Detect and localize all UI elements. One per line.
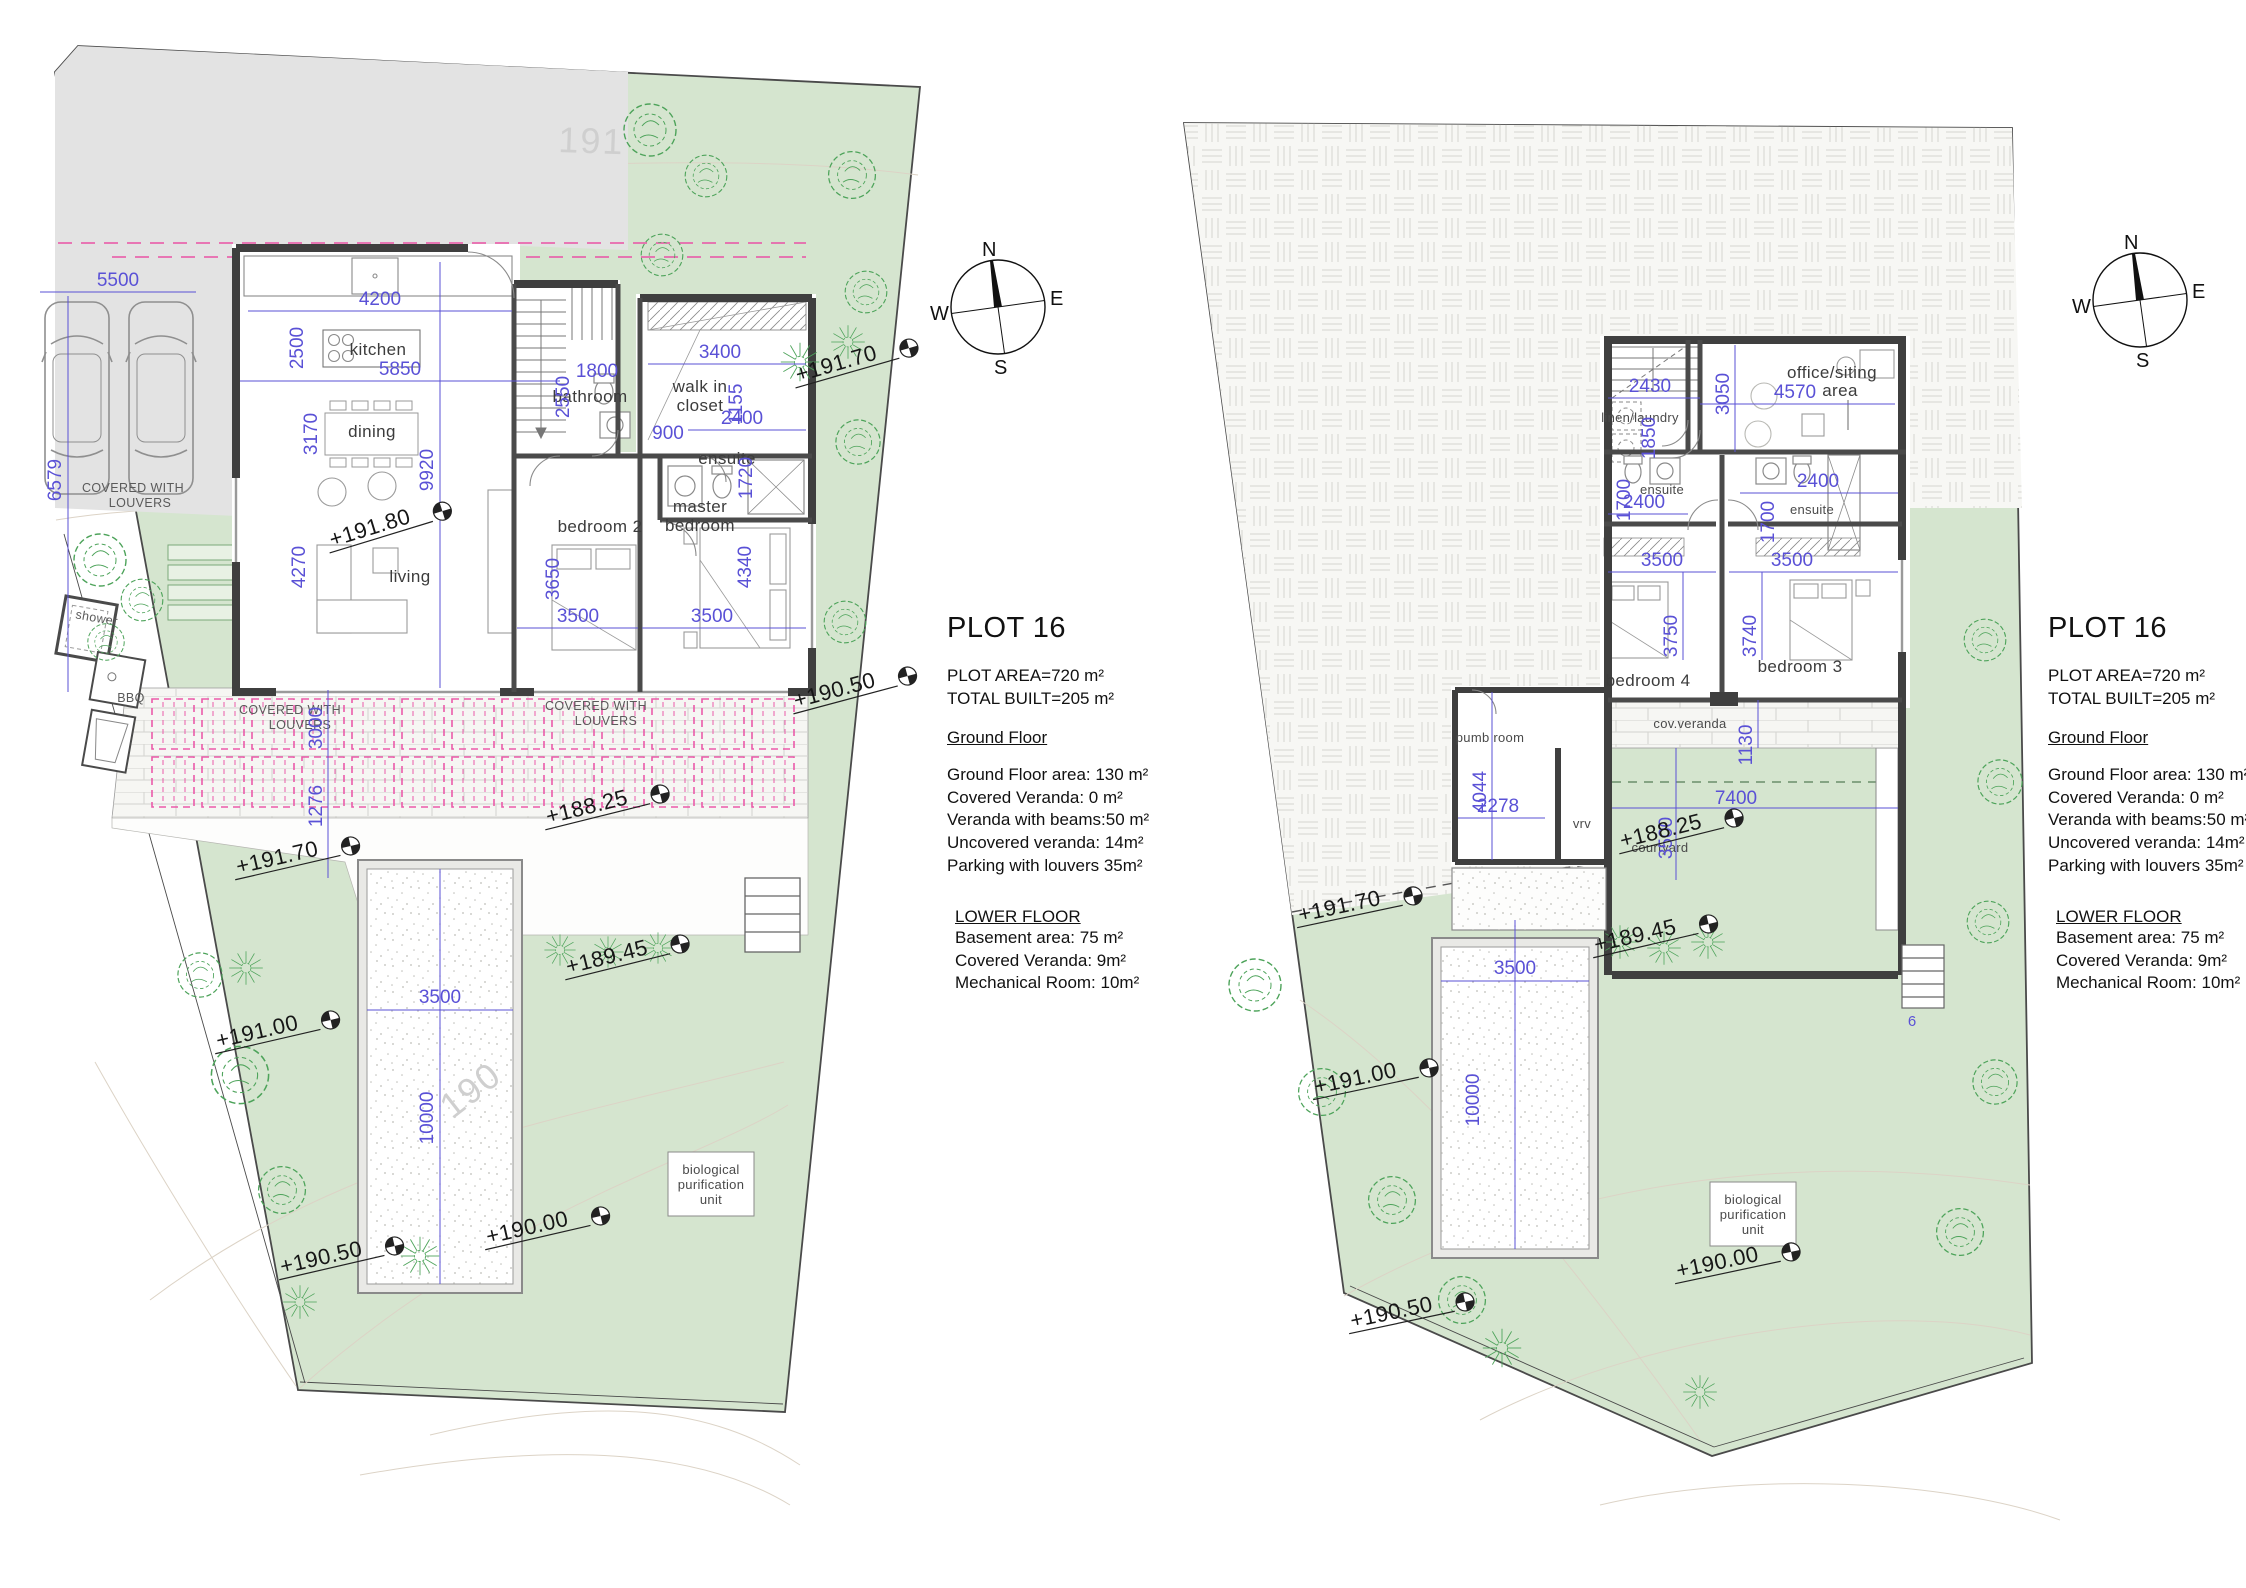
dim-stair-width: 2430 [1629, 376, 1671, 397]
info-line: Uncovered veranda: 14m² [947, 832, 1149, 855]
compass-w-label: W [2072, 296, 2091, 318]
bio-unit-label: biological [682, 1162, 739, 1177]
lower-floor-heading: LOWER FLOOR [955, 907, 1149, 927]
dim-ensuite-right-width: 2400 [1797, 471, 1839, 492]
bio-unit-label: biological [1724, 1192, 1781, 1207]
ground-floor-heading: Ground Floor [947, 728, 1149, 748]
veranda-column [1710, 692, 1738, 706]
contour-label-191: 191 [558, 119, 625, 162]
walk-in-closet-label: closet [677, 396, 724, 415]
ground-floor-plan: COVERED WITH LOUVERS COVERED WITH LOUVER… [40, 46, 920, 1505]
pump-room-label: pumb room [1456, 730, 1524, 745]
dim-master-width: 3500 [691, 606, 733, 627]
plot-area: PLOT AREA=720 m² [2048, 665, 2246, 688]
bio-unit-label: unit [1742, 1222, 1764, 1237]
dim-pool-length: 10000 [417, 1092, 438, 1145]
dim-kitchen-depth: 2500 [287, 327, 308, 369]
bedroom2-label: bedroom 2 [558, 517, 643, 536]
info-line: Ground Floor area: 130 m² [947, 764, 1149, 787]
bio-unit-label: purification [1720, 1207, 1786, 1222]
dim-bed2-width: 3500 [557, 606, 599, 627]
info-line: Parking with louvers 35m² [2048, 855, 2246, 878]
office-label: office/siting [1787, 363, 1877, 382]
garden-stair [745, 878, 800, 952]
dim-veranda-depth: 3000 [306, 707, 327, 749]
compass-left: N E S W [930, 239, 1063, 379]
dim-ensuite-depth: 1720 [736, 457, 757, 499]
info-line: Covered Veranda: 9m² [2056, 950, 2246, 973]
info-line: Ground Floor area: 130 m² [2048, 764, 2246, 787]
dim-laundry-depth: 1850 [1639, 417, 1660, 459]
parking-louvers-label: COVERED WITH [82, 481, 184, 495]
dim-office-width: 4570 [1774, 382, 1816, 403]
info-line: Basement area: 75 m² [2056, 927, 2246, 950]
office-label: area [1822, 381, 1858, 400]
bedroom4-label: bedroom 4 [1606, 671, 1691, 690]
dim-pool-width: 3500 [419, 987, 461, 1008]
info-line: Mechanical Room: 10m² [955, 972, 1149, 995]
dim-dining-depth: 3170 [301, 413, 322, 455]
dim-closet-width: 3400 [699, 342, 741, 363]
stair-count-label: 6 [1908, 1013, 1916, 1030]
info-line: Covered Veranda: 9m² [955, 950, 1149, 973]
cov-veranda-label: cov.veranda [1653, 716, 1727, 731]
total-built: TOTAL BUILT=205 m² [2048, 688, 2246, 711]
veranda-louvers-label: COVERED WITH [545, 699, 647, 713]
dim-ensuite-left-width: 2400 [1623, 492, 1665, 513]
living-label: living [389, 567, 430, 586]
dim-pump-width: 2278 [1477, 796, 1519, 817]
plot-title: PLOT 16 [2048, 612, 2246, 645]
dim-master-depth: 4340 [735, 546, 756, 588]
vrv-label: vrv [1573, 816, 1591, 831]
master-bedroom-label: master [673, 497, 727, 516]
dim-bed3-width: 3500 [1771, 550, 1813, 571]
kitchen-label: kitchen [350, 340, 407, 359]
compass-e-label: E [1050, 288, 1063, 310]
bedroom4-bed [1608, 582, 1668, 658]
dim-bed3-depth: 3740 [1740, 615, 1761, 657]
dining-label: dining [348, 422, 396, 441]
dim-bath-depth: 2550 [553, 376, 574, 418]
bio-unit: biological purification unit [1710, 1182, 1796, 1246]
dim-veranda-depth: 1130 [1736, 725, 1757, 766]
info-line: Mechanical Room: 10m² [2056, 972, 2246, 995]
dim-bed4-depth: 3750 [1661, 615, 1682, 657]
dim-pool-width: 3500 [1494, 958, 1536, 979]
dim-office-depth: 3050 [1713, 373, 1734, 415]
bedroom3-label: bedroom 3 [1758, 657, 1843, 676]
plot-area: PLOT AREA=720 m² [947, 665, 1149, 688]
lower-floor-plan: 6 biological purification unit [1184, 123, 2060, 1520]
dim-parking-width: 5500 [97, 270, 139, 291]
site-plan-sheet: COVERED WITH LOUVERS COVERED WITH LOUVER… [0, 0, 2246, 1588]
info-panel-lower-floor: PLOT 16 PLOT AREA=720 m² TOTAL BUILT=205… [2048, 612, 2246, 995]
info-line: Covered Veranda: 0 m² [947, 787, 1149, 810]
dim-living-width: 5850 [379, 359, 421, 380]
ensuite-right-label: ensuite [1790, 502, 1834, 517]
info-line: Basement area: 75 m² [955, 927, 1149, 950]
veranda-louvers-label: LOUVERS [575, 714, 638, 728]
plot-title: PLOT 16 [947, 612, 1149, 645]
compass-w-label: W [930, 303, 949, 325]
info-line: Covered Veranda: 0 m² [2048, 787, 2246, 810]
ground-floor-heading: Ground Floor [2048, 728, 2246, 748]
info-line: Parking with louvers 35m² [947, 855, 1149, 878]
courtyard-planter [1876, 748, 1898, 930]
info-line: Uncovered veranda: 14m² [2048, 832, 2246, 855]
dim-kitchen-width: 4200 [359, 289, 401, 310]
dim-ensuite-right-depth: 1700 [1758, 501, 1779, 543]
dim-parking-depth: 6579 [45, 459, 66, 501]
dim-bath-width: 1800 [576, 361, 618, 382]
compass-s-label: S [994, 357, 1007, 379]
dim-pool-length: 10000 [1463, 1074, 1484, 1127]
dim-living-depth2: 4270 [289, 546, 310, 588]
external-stair [1902, 945, 1944, 1008]
lower-floor-heading: LOWER FLOOR [2056, 907, 2246, 927]
bio-unit-label: unit [700, 1192, 722, 1207]
total-built: TOTAL BUILT=205 m² [947, 688, 1149, 711]
info-panel-ground-floor: PLOT 16 PLOT AREA=720 m² TOTAL BUILT=205… [947, 612, 1149, 995]
parking-louvers-label: LOUVERS [109, 496, 172, 510]
bio-unit-label: purification [678, 1177, 744, 1192]
dim-living-depth: 9920 [417, 449, 438, 491]
compass-s-label: S [2136, 350, 2149, 372]
compass-n-label: N [2124, 232, 2138, 254]
dim-courtyard-width: 7400 [1715, 788, 1757, 809]
bbq-label: BBQ [117, 691, 145, 705]
dim-bed4-width: 3500 [1641, 550, 1683, 571]
dim-ensuite-width: 2400 [721, 408, 763, 429]
dim-hall-width: 900 [652, 423, 684, 444]
compass-right: N E S W [2072, 232, 2205, 372]
info-line: Veranda with beams:50 m² [2048, 809, 2246, 832]
outdoor-shower [56, 596, 117, 662]
bio-unit: biological purification unit [668, 1152, 754, 1216]
dim-terrace-depth: 1276 [306, 785, 327, 827]
compass-e-label: E [2192, 281, 2205, 303]
master-bedroom-label: bedroom [665, 516, 735, 535]
dim-bed2-depth: 3650 [543, 558, 564, 600]
walk-in-closet-label: walk in [672, 377, 728, 396]
compass-n-label: N [982, 239, 996, 261]
info-line: Veranda with beams:50 m² [947, 809, 1149, 832]
